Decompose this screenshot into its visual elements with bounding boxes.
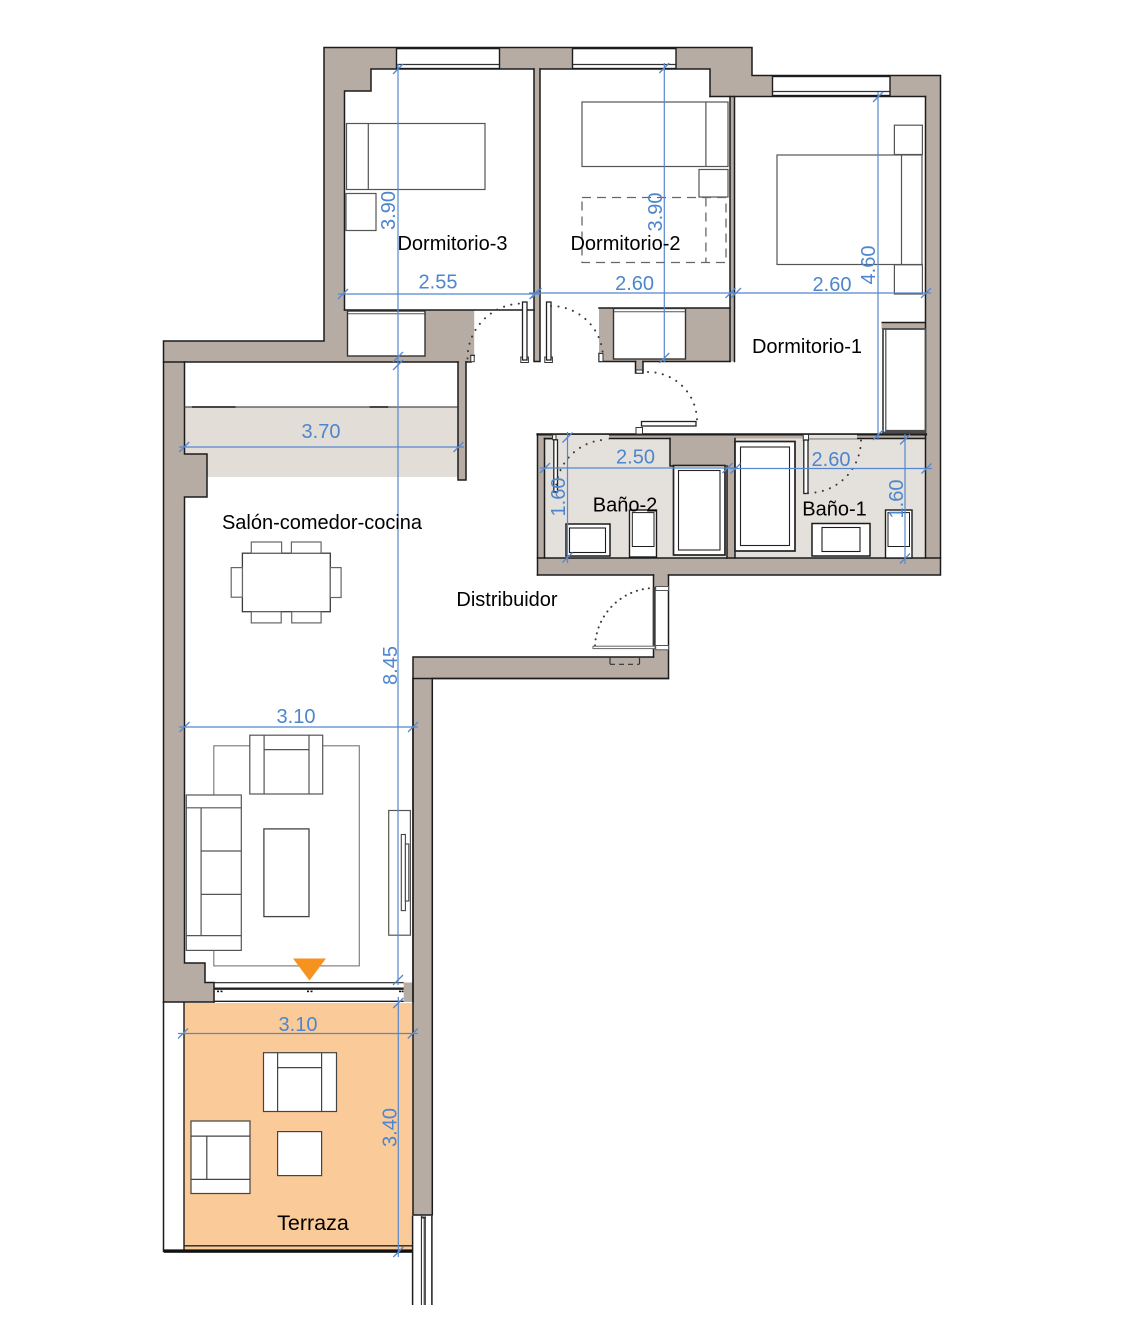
svg-text:Distribuidor: Distribuidor [456, 589, 557, 611]
svg-text:2.60: 2.60 [813, 274, 852, 296]
svg-text:2.50: 2.50 [616, 447, 655, 469]
svg-text:Dormitorio-2: Dormitorio-2 [570, 233, 680, 255]
svg-text:8.45: 8.45 [380, 646, 402, 685]
svg-text:3.10: 3.10 [279, 1014, 318, 1036]
svg-text:3.40: 3.40 [380, 1108, 402, 1147]
svg-text:3.10: 3.10 [277, 706, 316, 728]
svg-text:Salón-comedor-cocina: Salón-comedor-cocina [222, 512, 423, 534]
svg-text:Terraza: Terraza [277, 1211, 349, 1235]
svg-text:3.70: 3.70 [302, 421, 341, 443]
svg-text:3.90: 3.90 [645, 193, 667, 232]
svg-text:Dormitorio-1: Dormitorio-1 [752, 336, 862, 358]
svg-text:Dormitorio-3: Dormitorio-3 [397, 233, 507, 255]
svg-text:2.55: 2.55 [419, 272, 458, 294]
svg-text:2.60: 2.60 [812, 449, 851, 471]
svg-text:Baño-1: Baño-1 [802, 499, 867, 521]
svg-text:Baño-2: Baño-2 [593, 495, 658, 517]
svg-text:2.60: 2.60 [615, 273, 654, 295]
svg-text:1.60: 1.60 [886, 480, 908, 519]
svg-text:1.60: 1.60 [548, 478, 570, 517]
svg-text:3.90: 3.90 [378, 191, 400, 230]
svg-text:4.60: 4.60 [858, 246, 880, 285]
